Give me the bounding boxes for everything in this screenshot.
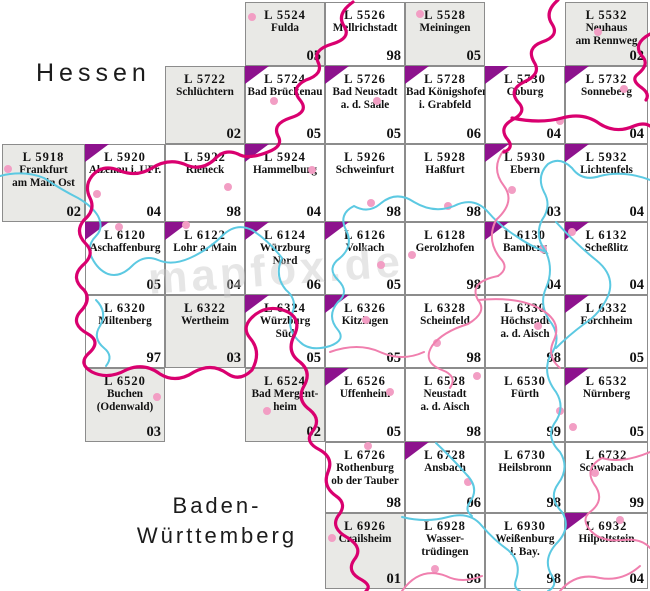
availability-triangle-icon bbox=[85, 144, 109, 162]
edition-number: 06 bbox=[467, 126, 482, 143]
sheet-name: Wertheim bbox=[166, 315, 244, 328]
edition-number: 04 bbox=[630, 126, 645, 143]
sheet-name: Alzenau i. UFr. bbox=[86, 164, 164, 177]
sheet-name: am Main Ost bbox=[3, 177, 84, 190]
sheet-name: Neuhaus bbox=[566, 22, 647, 35]
sheet-name: Frankfurt bbox=[3, 164, 84, 177]
edition-number: 04 bbox=[547, 277, 562, 294]
map-sheet-l-6328[interactable]: L 6328Scheinfeld98 bbox=[405, 295, 485, 368]
sheet-id: L 6520 bbox=[86, 374, 164, 388]
sheet-name: Haßfurt bbox=[406, 164, 484, 177]
sheet-name: Meiningen bbox=[406, 22, 484, 35]
map-sheet-l-6926[interactable]: L 6926Crailsheim01 bbox=[325, 513, 405, 589]
sheet-name: Fürth bbox=[486, 388, 564, 401]
sheet-name: Weißenburg bbox=[486, 533, 564, 546]
sheet-name: Uffenheim bbox=[326, 388, 404, 401]
availability-triangle-icon bbox=[85, 222, 109, 240]
edition-number: 05 bbox=[630, 424, 645, 441]
sheet-name: Scheßlitz bbox=[566, 242, 647, 255]
sheet-name: Lichtenfels bbox=[566, 164, 647, 177]
sheet-id: L 6730 bbox=[486, 448, 564, 462]
sheet-name: a. d. Saale bbox=[326, 99, 404, 112]
edition-number: 05 bbox=[307, 48, 322, 65]
sheet-name: Heilsbronn bbox=[486, 462, 564, 475]
edition-number: 05 bbox=[307, 350, 322, 367]
map-sheet-l-5926[interactable]: L 5926Schweinfurt98 bbox=[325, 144, 405, 222]
map-sheet-l-5732[interactable]: L 5732Sonneberg04 bbox=[565, 66, 648, 144]
availability-triangle-icon bbox=[565, 295, 589, 313]
availability-triangle-icon bbox=[565, 222, 589, 240]
map-sheet-l-6524[interactable]: L 6524Bad Mergent-heim02 bbox=[245, 368, 325, 442]
region-label-baden-wuerttemberg: Baden- Württemberg bbox=[112, 491, 322, 551]
map-sheet-l-6930[interactable]: L 6930Weißenburgi. Bay.98 bbox=[485, 513, 565, 589]
edition-number: 04 bbox=[547, 126, 562, 143]
availability-triangle-icon bbox=[485, 66, 509, 84]
sheet-name: Miltenberg bbox=[86, 315, 164, 328]
availability-triangle-icon bbox=[565, 66, 589, 84]
sheet-name: Mellrichstadt bbox=[326, 22, 404, 35]
sheet-name: Schweinfurt bbox=[326, 164, 404, 177]
sheet-id: L 5526 bbox=[326, 8, 404, 22]
region-label-hessen: Hessen bbox=[36, 59, 151, 88]
map-sheet-l-6928[interactable]: L 6928Wasser-trüdingen98 bbox=[405, 513, 485, 589]
sheet-id: L 5532 bbox=[566, 8, 647, 22]
map-sheet-l-5730[interactable]: L 5730Coburg04 bbox=[485, 66, 565, 144]
availability-triangle-icon bbox=[325, 66, 349, 84]
edition-number: 98 bbox=[387, 495, 402, 512]
sheet-name: (Odenwald) bbox=[86, 401, 164, 414]
edition-number: 04 bbox=[630, 571, 645, 588]
sheet-id: L 6330 bbox=[486, 301, 564, 315]
edition-number: 98 bbox=[467, 277, 482, 294]
sheet-name: Aschaffenburg bbox=[86, 242, 164, 255]
sheet-name: Bad Brückenau bbox=[246, 86, 324, 99]
sheet-name: Gerolzhofen bbox=[406, 242, 484, 255]
sheet-name: Kitzingen bbox=[326, 315, 404, 328]
edition-number: 98 bbox=[467, 350, 482, 367]
sheet-name: Wasser- bbox=[406, 533, 484, 546]
sheet-name: i. Grabfeld bbox=[406, 99, 484, 112]
edition-number: 98 bbox=[547, 571, 562, 588]
sheet-name: Rieneck bbox=[166, 164, 244, 177]
map-sheet-l-5930[interactable]: L 5930Ebern03 bbox=[485, 144, 565, 222]
availability-triangle-icon bbox=[405, 66, 429, 84]
map-sheet-l-5924[interactable]: L 5924Hammelburg04 bbox=[245, 144, 325, 222]
availability-triangle-icon bbox=[245, 66, 269, 84]
map-sheet-l-5532[interactable]: L 5532Neuhausam Rennweg02 bbox=[565, 2, 648, 66]
sheet-name: Hammelburg bbox=[246, 164, 324, 177]
availability-triangle-icon bbox=[245, 144, 269, 162]
sheet-id: L 5928 bbox=[406, 150, 484, 164]
edition-number: 05 bbox=[387, 350, 402, 367]
sheet-name: Bamberg bbox=[486, 242, 564, 255]
edition-number: 98 bbox=[467, 424, 482, 441]
edition-number: 02 bbox=[227, 126, 242, 143]
sheet-id: L 5926 bbox=[326, 150, 404, 164]
edition-number: 05 bbox=[387, 126, 402, 143]
sheet-name: Bad Königshofen bbox=[406, 86, 484, 99]
sheet-name: Ebern bbox=[486, 164, 564, 177]
edition-number: 98 bbox=[467, 571, 482, 588]
availability-triangle-icon bbox=[565, 368, 589, 386]
edition-number: 02 bbox=[67, 204, 82, 221]
sheet-name: Fulda bbox=[246, 22, 324, 35]
map-sheet-l-6322[interactable]: L 6322Wertheim03 bbox=[165, 295, 245, 368]
sheet-id: L 6128 bbox=[406, 228, 484, 242]
map-sheet-l-5526[interactable]: L 5526Mellrichstadt98 bbox=[325, 2, 405, 66]
map-sheet-l-6332[interactable]: L 6332Forchheim05 bbox=[565, 295, 648, 368]
edition-number: 98 bbox=[547, 350, 562, 367]
sheet-id: L 5722 bbox=[166, 72, 244, 86]
sheet-name: Süd bbox=[246, 328, 324, 341]
edition-number: 99 bbox=[547, 424, 562, 441]
map-sheet-l-5726[interactable]: L 5726Bad Neustadta. d. Saale05 bbox=[325, 66, 405, 144]
map-sheet-l-5932[interactable]: L 5932Lichtenfels04 bbox=[565, 144, 648, 222]
map-sheet-l-5524[interactable]: L 5524Fulda05 bbox=[245, 2, 325, 66]
sheet-name: am Rennweg bbox=[566, 35, 647, 48]
sheet-name: ob der Tauber bbox=[326, 475, 404, 488]
edition-number: 02 bbox=[630, 48, 645, 65]
sheet-name: Buchen bbox=[86, 388, 164, 401]
sheet-name: Bad Neustadt bbox=[326, 86, 404, 99]
map-sheet-l-5728[interactable]: L 5728Bad Königshofeni. Grabfeld06 bbox=[405, 66, 485, 144]
sheet-id: L 5524 bbox=[246, 8, 324, 22]
map-sheet-l-5918[interactable]: L 5918Frankfurtam Main Ost02 bbox=[2, 144, 85, 222]
edition-number: 04 bbox=[630, 204, 645, 221]
map-sheet-l-6320[interactable]: L 6320Miltenberg97 bbox=[85, 295, 165, 368]
edition-number: 05 bbox=[307, 126, 322, 143]
map-sheet-l-5528[interactable]: L 5528Meiningen05 bbox=[405, 2, 485, 66]
map-sheet-l-5922[interactable]: L 5922Rieneck98 bbox=[165, 144, 245, 222]
sheet-id: L 5528 bbox=[406, 8, 484, 22]
edition-number: 04 bbox=[630, 277, 645, 294]
map-sheet-l-6520[interactable]: L 6520Buchen(Odenwald)03 bbox=[85, 368, 165, 442]
sheet-id: L 6928 bbox=[406, 519, 484, 533]
sheet-name: a. d. Aisch bbox=[486, 328, 564, 341]
availability-triangle-icon bbox=[565, 513, 589, 531]
sheet-id: L 6930 bbox=[486, 519, 564, 533]
map-sheet-l-6532[interactable]: L 6532Nürnberg05 bbox=[565, 368, 648, 442]
map-sheet-l-6932[interactable]: L 6932Hilpoltstein04 bbox=[565, 513, 648, 589]
availability-triangle-icon bbox=[325, 295, 349, 313]
availability-triangle-icon bbox=[245, 222, 269, 240]
edition-number: 98 bbox=[387, 204, 402, 221]
sheet-name: Würzburg bbox=[246, 315, 324, 328]
availability-triangle-icon bbox=[405, 442, 429, 460]
availability-triangle-icon bbox=[485, 222, 509, 240]
map-sheet-l-5724[interactable]: L 5724Bad Brückenau05 bbox=[245, 66, 325, 144]
map-sheet-l-6528[interactable]: L 6528Neustadta. d. Aisch98 bbox=[405, 368, 485, 442]
sheet-name: Crailsheim bbox=[326, 533, 404, 546]
edition-number: 03 bbox=[147, 424, 162, 441]
sheet-id: L 6528 bbox=[406, 374, 484, 388]
map-sheet-l-6526[interactable]: L 6526Uffenheim05 bbox=[325, 368, 405, 442]
sheet-id: L 5922 bbox=[166, 150, 244, 164]
edition-number: 98 bbox=[387, 48, 402, 65]
edition-number: 06 bbox=[467, 495, 482, 512]
sheet-name: Schwabach bbox=[566, 462, 647, 475]
availability-triangle-icon bbox=[485, 144, 509, 162]
map-sheet-l-6530[interactable]: L 6530Fürth99 bbox=[485, 368, 565, 442]
map-sheet-l-6326[interactable]: L 6326Kitzingen05 bbox=[325, 295, 405, 368]
sheet-id: L 6328 bbox=[406, 301, 484, 315]
map-sheet-index: Hessen Baden- Württemberg mapfox.de L 55… bbox=[0, 0, 650, 591]
sheet-name: Bad Mergent- bbox=[246, 388, 324, 401]
map-sheet-l-6726[interactable]: L 6726Rothenburgob der Tauber98 bbox=[325, 442, 405, 513]
sheet-name: Sonneberg bbox=[566, 86, 647, 99]
edition-number: 03 bbox=[547, 204, 562, 221]
sheet-name: heim bbox=[246, 401, 324, 414]
availability-triangle-icon bbox=[325, 368, 349, 386]
sheet-id: L 5918 bbox=[3, 150, 84, 164]
availability-triangle-icon bbox=[325, 222, 349, 240]
sheet-id: L 6530 bbox=[486, 374, 564, 388]
edition-number: 02 bbox=[307, 424, 322, 441]
edition-number: 05 bbox=[387, 424, 402, 441]
sheet-name: i. Bay. bbox=[486, 546, 564, 559]
sheet-id: L 6926 bbox=[326, 519, 404, 533]
edition-number: 01 bbox=[387, 571, 402, 588]
map-sheet-l-6130[interactable]: L 6130Bamberg04 bbox=[485, 222, 565, 295]
sheet-name: a. d. Aisch bbox=[406, 401, 484, 414]
edition-number: 04 bbox=[147, 204, 162, 221]
map-sheet-l-6128[interactable]: L 6128Gerolzhofen98 bbox=[405, 222, 485, 295]
sheet-name: Schlüchtern bbox=[166, 86, 244, 99]
edition-number: 05 bbox=[630, 350, 645, 367]
map-sheet-l-6730[interactable]: L 6730Heilsbronn98 bbox=[485, 442, 565, 513]
map-sheet-l-6728[interactable]: L 6728Ansbach06 bbox=[405, 442, 485, 513]
sheet-name: trüdingen bbox=[406, 546, 484, 559]
sheet-name: Rothenburg bbox=[326, 462, 404, 475]
edition-number: 98 bbox=[547, 495, 562, 512]
sheet-id: L 6524 bbox=[246, 374, 324, 388]
edition-number: 03 bbox=[227, 350, 242, 367]
map-sheet-l-6132[interactable]: L 6132Scheßlitz04 bbox=[565, 222, 648, 295]
sheet-id: L 6322 bbox=[166, 301, 244, 315]
map-sheet-l-6330[interactable]: L 6330Höchstadta. d. Aisch98 bbox=[485, 295, 565, 368]
availability-triangle-icon bbox=[565, 144, 589, 162]
sheet-id: L 6732 bbox=[566, 448, 647, 462]
map-sheet-l-5920[interactable]: L 5920Alzenau i. UFr.04 bbox=[85, 144, 165, 222]
map-sheet-l-5722[interactable]: L 5722Schlüchtern02 bbox=[165, 66, 245, 144]
map-sheet-l-6732[interactable]: L 6732Schwabach99 bbox=[565, 442, 648, 513]
map-sheet-l-6324[interactable]: L 6324WürzburgSüd05 bbox=[245, 295, 325, 368]
sheet-name: Ansbach bbox=[406, 462, 484, 475]
edition-number: 98 bbox=[227, 204, 242, 221]
edition-number: 99 bbox=[630, 495, 645, 512]
edition-number: 04 bbox=[307, 204, 322, 221]
edition-number: 97 bbox=[147, 350, 162, 367]
sheet-id: L 6726 bbox=[326, 448, 404, 462]
sheet-name: Neustadt bbox=[406, 388, 484, 401]
sheet-name: Nürnberg bbox=[566, 388, 647, 401]
sheet-name: Höchstadt bbox=[486, 315, 564, 328]
edition-number: 05 bbox=[467, 48, 482, 65]
sheet-name: Forchheim bbox=[566, 315, 647, 328]
map-sheet-l-5928[interactable]: L 5928Haßfurt98 bbox=[405, 144, 485, 222]
sheet-name: Hilpoltstein bbox=[566, 533, 647, 546]
sheet-name: Scheinfeld bbox=[406, 315, 484, 328]
availability-triangle-icon bbox=[165, 222, 189, 240]
region-label-line2: Württemberg bbox=[112, 521, 322, 551]
edition-number: 98 bbox=[467, 204, 482, 221]
sheet-name: Coburg bbox=[486, 86, 564, 99]
region-label-line1: Baden- bbox=[112, 491, 322, 521]
